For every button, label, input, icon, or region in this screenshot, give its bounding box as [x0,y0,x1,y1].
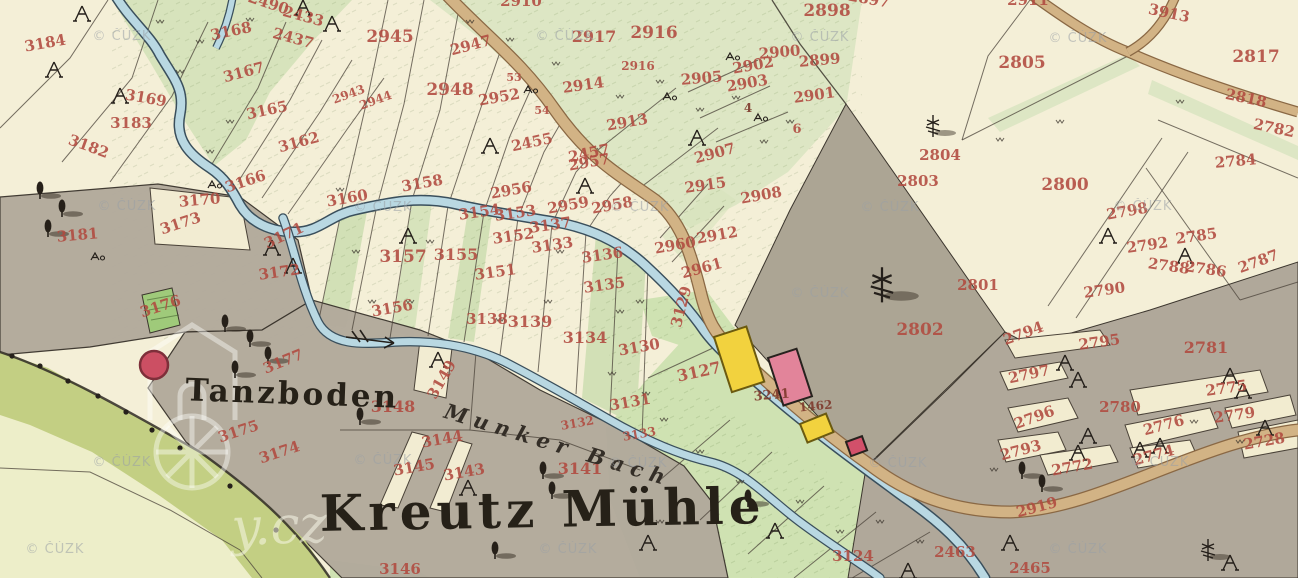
parcel-number-2804: 2804 [919,146,961,164]
parcel-number-54: 54 [534,104,550,117]
cuzk-watermark: © ČÚZK [354,199,413,215]
parcel-number-2916: 2916 [630,23,677,43]
parcel-number-2898: 2898 [803,1,850,21]
parcel-number-2805: 2805 [998,53,1045,73]
parcel-number-3139: 3139 [508,312,553,331]
cuzk-watermark: © ČÚZK [93,454,152,470]
parcel-number-2781: 2781 [1184,338,1229,357]
parcel-number-2463: 2463 [934,543,976,561]
cuzk-watermark: © ČÚZK [539,541,598,557]
cuzk-watermark: © ČÚZK [1131,454,1190,470]
house-number-1462: 1462 [798,398,832,415]
area-label-tanzboden: Tanzboden [185,372,400,415]
parcel-number-3146: 3146 [379,560,421,578]
cuzk-watermark: © ČÚZK [791,285,850,301]
parcel-number-2465: 2465 [1009,559,1051,577]
cuzk-watermark: © ČÚZK [791,29,850,45]
parcel-number-3170: 3170 [178,189,221,211]
parcel-number-6: 6 [792,122,801,137]
cuzk-watermark: © ČÚZK [861,199,920,215]
parcel-number-2905: 2905 [680,67,723,89]
dance-floor-circle [140,351,168,379]
parcel-number-2802: 2802 [896,320,943,340]
cuzk-watermark: © ČÚZK [869,455,928,471]
parcel-number-3155: 3155 [434,245,479,264]
parcel-number-53: 53 [506,71,521,84]
parcel-number-3157: 3157 [379,247,426,267]
cuzk-watermark: © ČÚZK [609,455,668,471]
cuzk-watermark: © ČÚZK [26,541,85,557]
parcel-number-3134: 3134 [563,328,608,347]
house-number-4: 4 [744,101,752,115]
parcel-number-3138: 3138 [466,310,508,328]
parcel-number-2899: 2899 [798,49,841,71]
house-number-3241: 3241 [753,386,790,404]
parcel-number-2800: 2800 [1041,175,1088,195]
cuzk-watermark: © ČÚZK [1049,541,1108,557]
parcel-number-2948: 2948 [426,80,473,100]
cuzk-watermark: © ČÚZK [611,199,670,215]
parcel-number-2817: 2817 [1232,47,1279,67]
parcel-number-3124: 3124 [832,547,874,565]
cuzk-watermark: © ČÚZK [354,452,413,468]
parcel-number-2916: 2916 [621,59,654,73]
cuzk-watermark: © ČÚZK [536,28,595,44]
parcel-number-2910: 2910 [500,0,542,10]
parcel-number-2784: 2784 [1214,150,1257,172]
cuzk-watermark: © ČÚZK [1114,198,1173,214]
parcel-number-2803: 2803 [897,172,939,190]
cuzk-watermark: © ČÚZK [93,28,152,44]
parcel-number-3181: 3181 [56,224,99,246]
parcel-number-2780: 2780 [1099,398,1141,416]
cuzk-watermark: © ČÚZK [98,198,157,214]
large-watermark-text: y.cz [228,495,328,558]
map-viewport[interactable]: y.cz 31843183318231693168316731653162316… [0,0,1298,578]
cadastral-map-canvas[interactable]: y.cz 31843183318231693168316731653162316… [0,0,1298,578]
parcel-number-3183: 3183 [110,114,152,132]
parcel-number-2945: 2945 [366,27,413,47]
cuzk-watermark: © ČÚZK [1049,30,1108,46]
settlement-label-kreutz-muehle: Kreutz Mühle [319,476,766,543]
parcel-number-2801: 2801 [957,276,999,294]
parcel-number-2911: 2911 [1007,0,1049,9]
